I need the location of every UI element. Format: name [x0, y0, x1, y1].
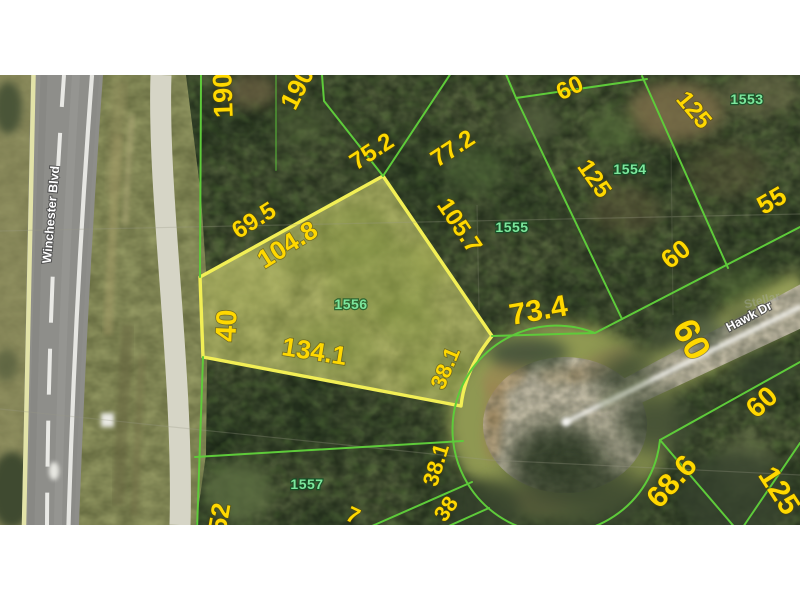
svg-text:40: 40: [210, 309, 243, 342]
svg-text:1553: 1553: [730, 91, 763, 107]
svg-text:1554: 1554: [613, 161, 646, 177]
svg-text:190: 190: [207, 75, 239, 118]
svg-text:1555: 1555: [495, 219, 528, 235]
svg-text:1557: 1557: [290, 476, 323, 492]
svg-text:1556: 1556: [334, 296, 367, 312]
